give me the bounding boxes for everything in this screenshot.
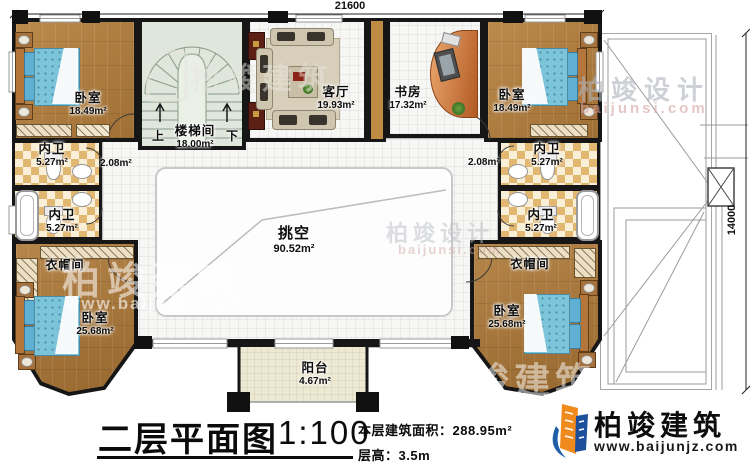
- room-area: 5.27m²: [509, 223, 573, 234]
- scale-label: 1:100: [278, 414, 371, 452]
- room-area: 18.49m²: [477, 103, 547, 114]
- room-label-bath-r2: 内卫 5.27m²: [509, 209, 573, 234]
- room-area: 4.67m²: [280, 376, 350, 387]
- corridor-left-area: 2.08m²: [100, 158, 132, 169]
- room-name: 客厅: [301, 86, 371, 100]
- room-name: 内卫: [30, 209, 94, 223]
- room-area: 18.49m²: [53, 106, 123, 117]
- room-name: 卧室: [477, 89, 547, 103]
- stair-up-label: 上: [152, 127, 164, 144]
- room-name: 卧室: [472, 305, 542, 319]
- room-name: 楼梯间: [164, 125, 226, 139]
- sofa-chaise: [256, 48, 273, 110]
- page-title: 二层平面图: [98, 412, 278, 461]
- bed-headboard: [577, 48, 587, 104]
- floor-area-text: 本层建筑面积：288.95m²: [358, 420, 512, 439]
- closet-shelves: [574, 248, 596, 278]
- room-name: 衣帽间: [500, 258, 560, 271]
- column: [268, 11, 288, 23]
- room-name: 挑空: [259, 226, 329, 243]
- room-label-bedroom-bl: 卧室 25.68m²: [60, 312, 130, 337]
- room-area: 19.93m²: [301, 100, 371, 111]
- room-label-bath-r1: 内卫 5.27m²: [515, 143, 579, 168]
- title-underline: [97, 456, 353, 459]
- plant: [452, 102, 465, 115]
- column: [584, 10, 602, 24]
- room-area: 5.27m²: [30, 223, 94, 234]
- room-label-bedroom-tr: 卧室 18.49m²: [477, 89, 547, 114]
- column: [12, 10, 28, 24]
- room-area: 5.27m²: [515, 157, 579, 168]
- room-label-study: 书房 17.32m²: [373, 86, 443, 111]
- room-name: 内卫: [509, 209, 573, 223]
- room-label-staircase: 楼梯间 18.00m²: [164, 125, 226, 150]
- floor-height-text: 层高：3.5m: [358, 445, 430, 464]
- floor-mat: [76, 124, 110, 137]
- pillow: [569, 324, 581, 349]
- sink: [72, 192, 92, 207]
- column: [134, 336, 152, 349]
- nightstand: [15, 32, 33, 48]
- sofa: [270, 28, 334, 46]
- room-label-bath-l2: 内卫 5.27m²: [30, 209, 94, 234]
- room-label-bedroom-br: 卧室 25.68m²: [472, 305, 542, 330]
- column: [451, 336, 469, 349]
- room-area: 18.00m²: [164, 139, 226, 150]
- wardrobe: [16, 124, 72, 137]
- room-area: 90.52m²: [259, 243, 329, 255]
- room-label-living: 客厅 19.93m²: [301, 86, 371, 111]
- room-label-closet-r: 衣帽间: [500, 258, 560, 271]
- balcony-column-right: [356, 392, 379, 412]
- room-label-balcony: 阳台 4.67m²: [280, 362, 350, 387]
- nightstand: [578, 352, 596, 368]
- room-area: 25.68m²: [472, 319, 542, 330]
- nightstand: [580, 32, 598, 48]
- room-name: 内卫: [20, 143, 84, 157]
- column: [82, 11, 100, 23]
- dimension-top: 21600: [320, 0, 380, 12]
- room-label-void: 挑空 90.52m²: [259, 226, 329, 255]
- room-label-closet-l: 衣帽间: [35, 259, 95, 272]
- room-area: 17.32m²: [373, 100, 443, 111]
- room-area: 25.68m²: [60, 326, 130, 337]
- balcony-column-left: [227, 392, 250, 412]
- table-tray: [293, 72, 305, 81]
- room-name: 卧室: [60, 312, 130, 326]
- brand-logo-icon: [546, 398, 592, 462]
- nightstand: [580, 104, 598, 120]
- wardrobe: [530, 124, 588, 137]
- room-area: 5.27m²: [20, 157, 84, 168]
- sink: [508, 192, 528, 207]
- room-label-bath-l1: 内卫 5.27m²: [20, 143, 84, 168]
- floor-plan-page: 卧室 18.49m² 上 楼梯间 18.00m² 下 客厅 19.93m² 书房…: [0, 0, 750, 466]
- room-name: 书房: [373, 86, 443, 100]
- brand-url: www.baijunjz.com: [594, 438, 739, 454]
- column: [503, 11, 523, 23]
- bathtub: [576, 190, 599, 241]
- sofa: [272, 110, 336, 130]
- stair-down-label: 下: [226, 127, 238, 144]
- corridor-right-area: 2.08m²: [468, 157, 500, 168]
- dimension-right: 14000: [726, 194, 738, 246]
- room-name: 卧室: [53, 92, 123, 106]
- room-label-bedroom-tl: 卧室 18.49m²: [53, 92, 123, 117]
- nightstand: [15, 104, 33, 120]
- room-name: 内卫: [515, 143, 579, 157]
- nightstand: [18, 354, 36, 370]
- room-name: 阳台: [280, 362, 350, 376]
- room-name: 衣帽间: [35, 259, 95, 272]
- logo-building-blue: [575, 414, 588, 452]
- pillow: [569, 298, 581, 323]
